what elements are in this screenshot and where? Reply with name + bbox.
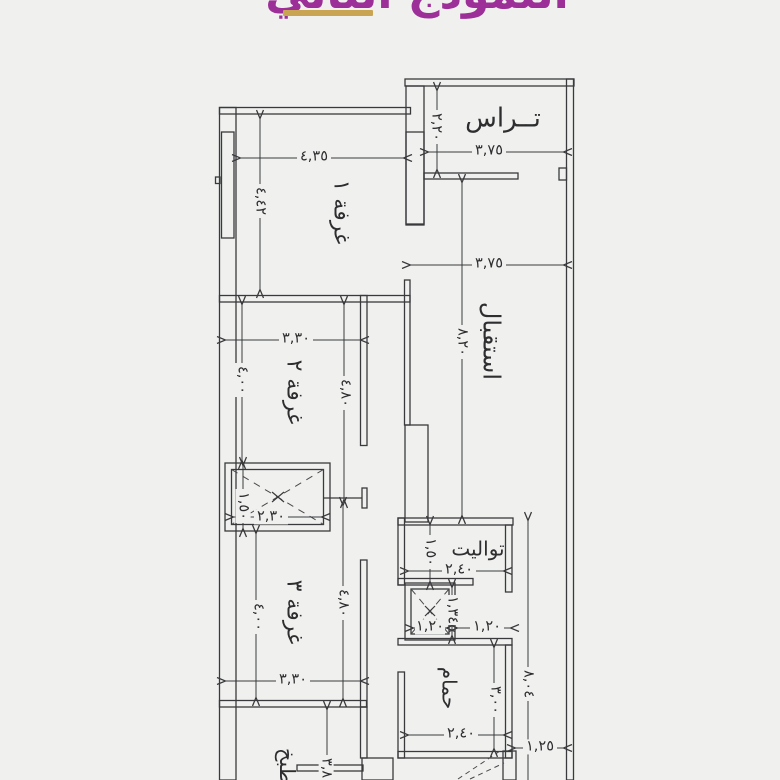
room-label-toilet: تواليت — [451, 539, 504, 560]
dim-reception-width: ٣,٧٥ — [472, 256, 506, 271]
dim-terrace-width: ٣,٧٥ — [472, 143, 506, 158]
bathroom-bottom-wall — [398, 752, 512, 759]
terrace-top-wall — [405, 79, 574, 86]
terrace-pillar — [406, 86, 424, 225]
closet-door-bar — [362, 488, 367, 508]
door-swing — [458, 749, 504, 779]
room1-window-hatch — [222, 132, 235, 238]
kitchen-right-wall — [361, 707, 368, 758]
room-label-room3: غرفة ٣ — [282, 580, 305, 645]
room3-bottom-wall — [220, 701, 367, 708]
dim-closet-width: ٢,٣٠ — [254, 509, 288, 524]
dim-room3-height-right: ٤,٨٠ — [335, 586, 350, 620]
dim-room2-width: ٣,٣٠ — [279, 331, 313, 346]
dim-bathroom-width: ٢,٤٠ — [444, 726, 478, 741]
dim-room3-width: ٣,٣٠ — [276, 672, 310, 687]
toilet-right-wall — [506, 525, 513, 592]
room-label-bathroom: حمام — [439, 667, 460, 709]
room1-bottom-wall — [220, 296, 411, 303]
room3-right-wall — [361, 560, 368, 707]
toilet-bottom-wall — [398, 579, 473, 586]
middle-pillar-hatch — [405, 425, 428, 522]
left-block-top-wall — [220, 108, 411, 115]
toilet-left-wall — [398, 518, 405, 585]
dim-duct-height: ١,٣٤ — [444, 595, 459, 625]
dim-bathroom-height: ٣,٠٠ — [487, 683, 502, 717]
dim-side-passage-width: ١,٢٥ — [523, 739, 557, 754]
floor-plan-page: النموذج الثاني — [0, 0, 780, 780]
room-label-kitchen: مطبخ — [276, 748, 298, 780]
bathroom-left-wall — [398, 672, 405, 758]
dim-closet-height: ١,٥٠ — [235, 489, 250, 523]
dim-kitchen-height: ٣,٨٠ — [318, 755, 333, 780]
terrace-shelf-wall — [424, 173, 518, 179]
terrace-right-notch — [559, 168, 567, 180]
dim-corridor-width: ١,٢٠ — [470, 619, 504, 634]
dim-room2-height-right: ٤,٨٠ — [337, 376, 352, 410]
right-outer-wall — [567, 79, 574, 780]
room2-right-wall — [361, 296, 368, 446]
dim-room1-height: ٤,٤٢ — [252, 184, 267, 218]
room-label-room1: غرفة ١ — [329, 180, 352, 245]
terrace-pillar-hatch — [406, 132, 424, 224]
dim-reception-height: ٨,٢٠ — [454, 325, 469, 359]
bathroom-right-wall — [506, 645, 513, 758]
room-label-terrace: تــراس — [465, 105, 541, 132]
dim-terrace-height: ٢,٢٠ — [428, 110, 443, 144]
kitchen-bottom-hatch — [362, 758, 393, 780]
dim-room3-height-left: ٤,٠٠ — [250, 600, 265, 634]
dim-toilet-height: ١,٥٠ — [422, 535, 437, 569]
room-label-reception: استقبال — [478, 302, 503, 380]
dim-duct-width: ١,٢٠ — [415, 619, 445, 634]
floor-plan-drawing — [0, 0, 780, 780]
dim-side-total-height: ٨,٠٤ — [520, 667, 535, 701]
dim-room2-height-left: ٤,٠٠ — [234, 363, 249, 397]
dim-toilet-width: ٢,٤٠ — [442, 562, 476, 577]
dim-room1-width: ٤,٣٥ — [297, 149, 331, 164]
room-label-room2: غرفة ٢ — [282, 360, 305, 425]
